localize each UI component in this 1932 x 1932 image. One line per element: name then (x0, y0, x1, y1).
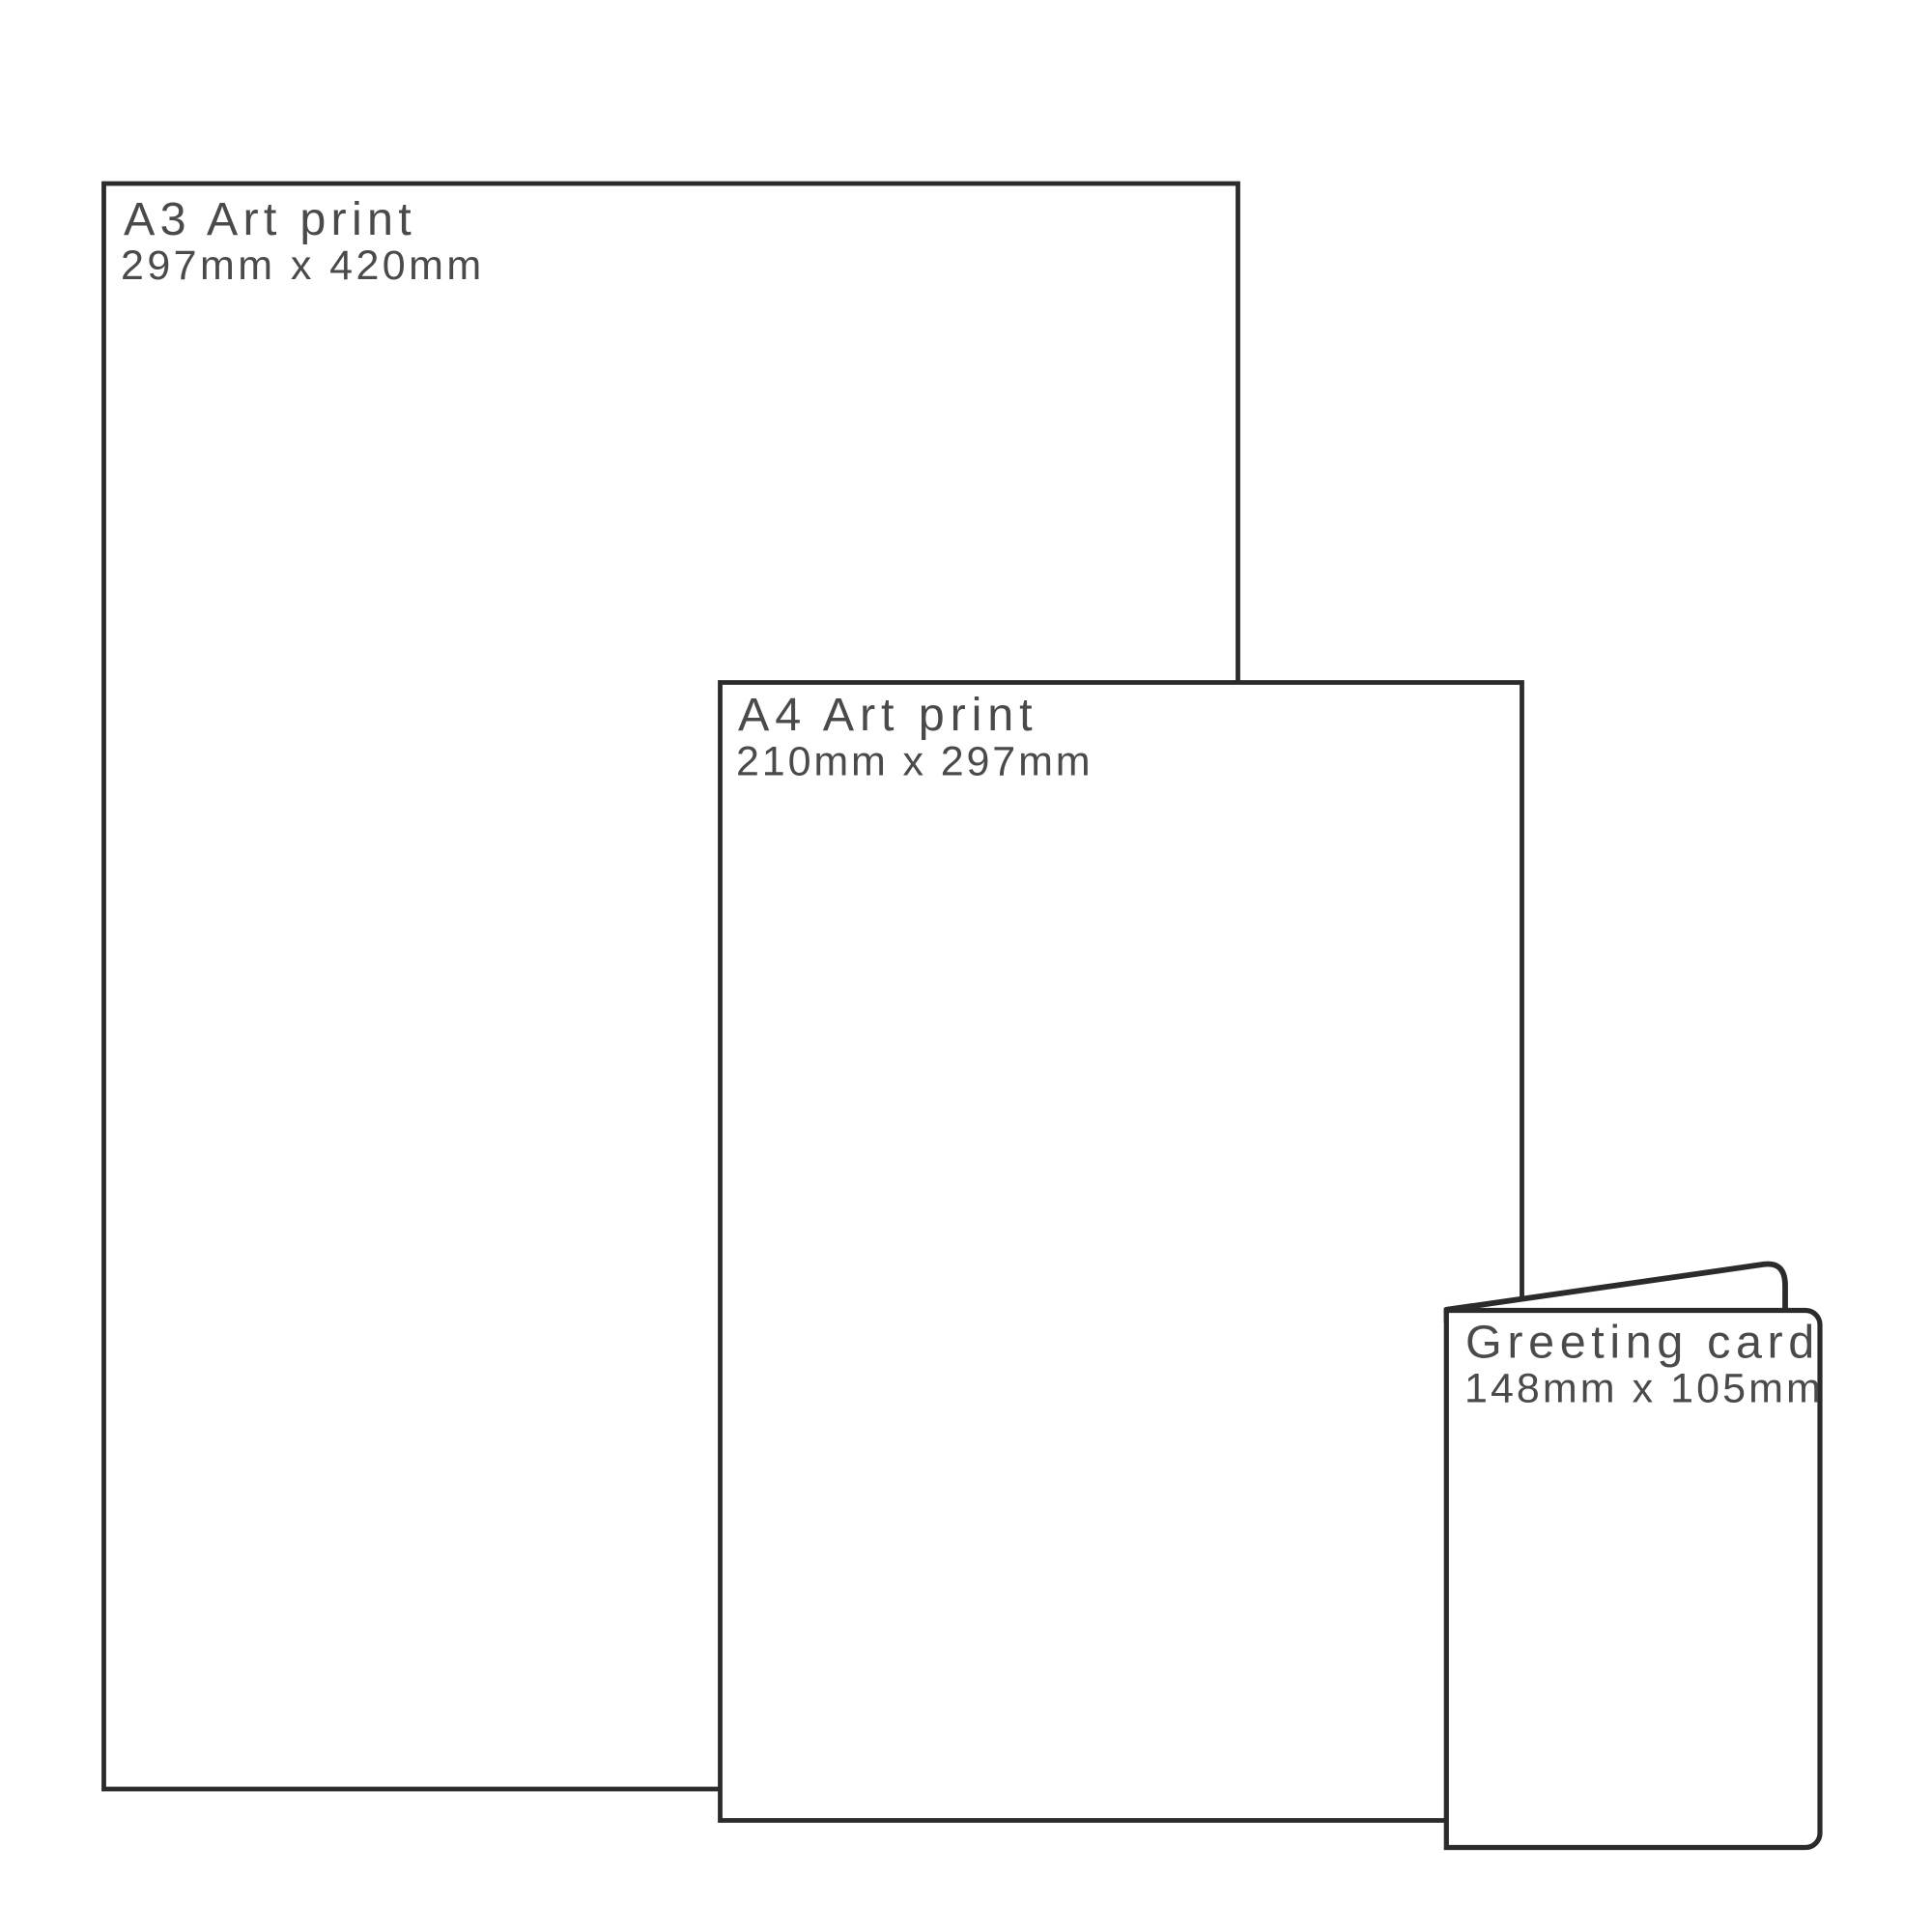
svg-text:148mm x 105mm: 148mm x 105mm (1464, 1366, 1824, 1412)
svg-text:297mm x 420mm: 297mm x 420mm (121, 242, 485, 289)
svg-text:A4 Art print: A4 Art print (738, 689, 1037, 741)
svg-text:210mm x 297mm: 210mm x 297mm (736, 738, 1093, 784)
svg-text:Greeting card: Greeting card (1465, 1316, 1820, 1368)
svg-text:A3 Art print: A3 Art print (124, 193, 416, 245)
